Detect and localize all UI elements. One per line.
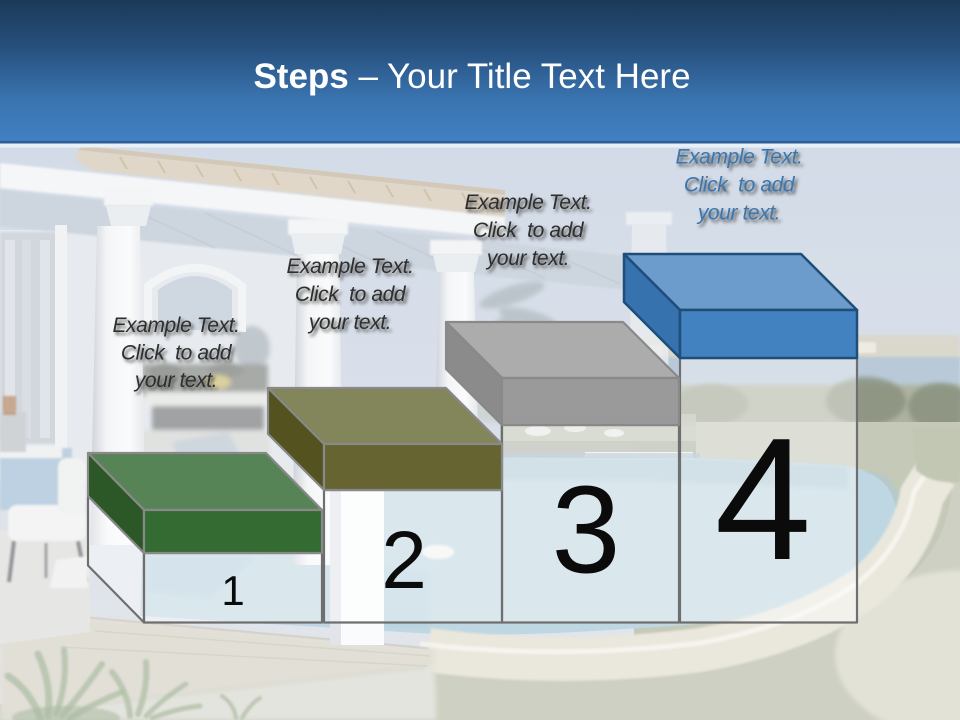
svg-text:Example Text.: Example Text.: [112, 314, 239, 337]
svg-text:Click to add: Click to add: [295, 283, 407, 306]
svg-text:Click to add: Click to add: [684, 174, 796, 197]
svg-text:Steps – Your Title Text Here: Steps – Your Title Text Here: [253, 57, 690, 96]
svg-text:Example Text.: Example Text.: [675, 146, 802, 169]
svg-text:Example Text.: Example Text.: [464, 191, 591, 214]
svg-text:Example Text.: Example Text.: [286, 255, 413, 278]
svg-text:Click to add: Click to add: [121, 342, 233, 365]
svg-text:4: 4: [715, 401, 812, 596]
svg-text:your text.: your text.: [307, 311, 391, 334]
svg-text:2: 2: [381, 515, 427, 606]
svg-text:Click to add: Click to add: [473, 219, 585, 242]
svg-text:3: 3: [552, 462, 621, 600]
svg-text:your text.: your text.: [485, 247, 569, 270]
svg-text:1: 1: [221, 567, 244, 614]
svg-text:your text.: your text.: [133, 369, 217, 392]
svg-text:your text.: your text.: [696, 202, 780, 225]
